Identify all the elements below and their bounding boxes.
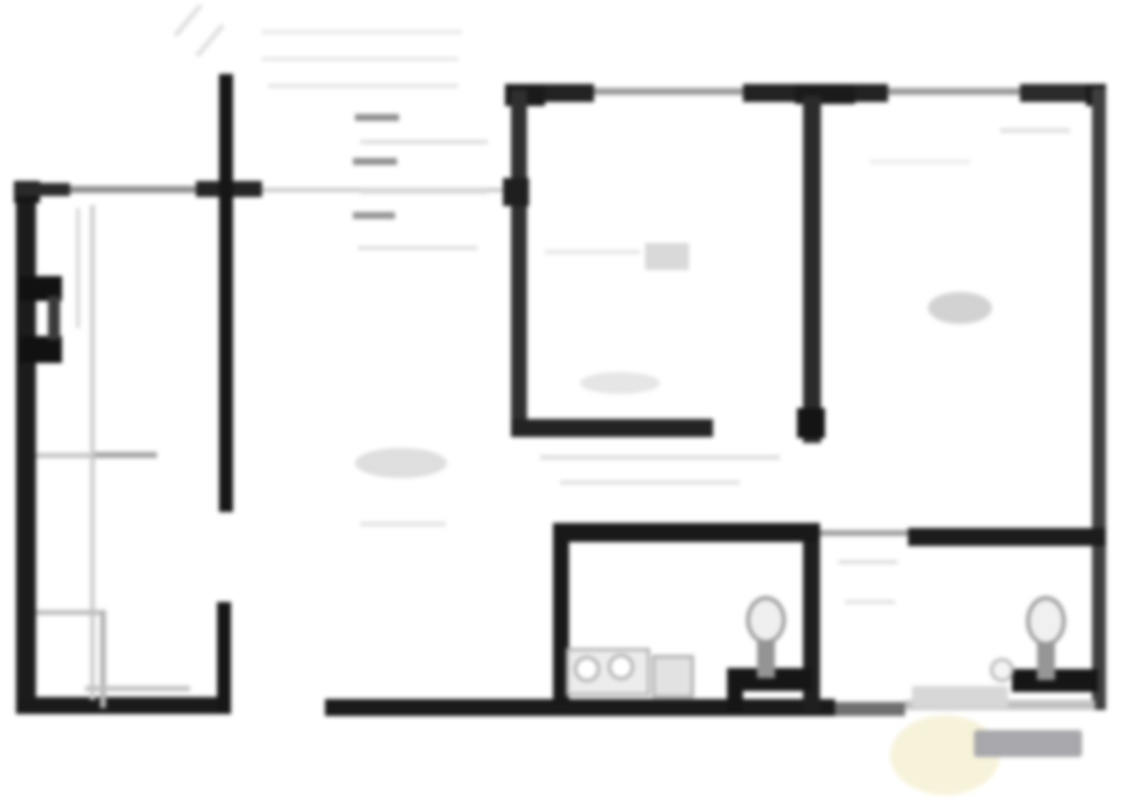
bottom-wall-door-strip — [835, 702, 905, 716]
left-wall-feature-edge — [48, 296, 60, 340]
center-room-smudge-oval — [580, 372, 660, 394]
floor-plan-drawing — [0, 0, 1127, 800]
bath-hall-faint-mark-2 — [845, 600, 895, 604]
partition-wall-upper — [803, 96, 821, 443]
hall-faint-line-1 — [360, 140, 488, 144]
closet-line-vertical — [100, 610, 106, 708]
hall-dash-3 — [353, 212, 395, 219]
sink-cabinet-box — [652, 655, 694, 698]
right-room-faint-mark-2 — [870, 160, 970, 164]
bath1-niche-wall-vertical — [727, 668, 743, 712]
stair-ghost-diagonal-1 — [173, 4, 203, 38]
interior-wall-vertical-lower — [217, 602, 231, 714]
hall-dash-2 — [353, 158, 397, 165]
top-wall-window-1 — [594, 88, 743, 95]
hall-faint-line-2 — [360, 190, 488, 194]
hall-ghost-line-1 — [262, 30, 462, 34]
bottom-wall-mid — [325, 699, 835, 716]
toilet2-bowl — [1026, 596, 1066, 646]
sink-bowl-1 — [574, 656, 600, 682]
right-exterior-wall — [1092, 88, 1106, 710]
left-wall-feature-bottom — [20, 336, 62, 363]
right-room-label-smudge — [928, 292, 992, 324]
bath2-niche-wall-horizontal — [1012, 669, 1098, 692]
partition-wall-upper-end-cap — [797, 408, 825, 438]
closet-line-horizontal-2 — [85, 686, 190, 691]
hall-ghost-line-3 — [268, 84, 458, 88]
left-top-wall-dark — [16, 183, 70, 196]
toilet1-tank — [757, 640, 775, 678]
dimension-scribble-1 — [540, 455, 780, 460]
hall-dash-1 — [355, 114, 399, 121]
top-wall-window-2 — [888, 88, 1020, 95]
center-room-smudge-line — [545, 250, 640, 254]
bath2-basin — [990, 658, 1014, 682]
hall-smudge-line — [360, 522, 446, 526]
wardrobe-line-vertical-2 — [76, 208, 80, 328]
center-room-bottom-wall — [511, 419, 713, 437]
bath2-top-wall — [908, 528, 1106, 546]
stair-ghost-diagonal-2 — [195, 24, 225, 58]
hall-faint-line-3 — [358, 246, 478, 250]
toilet2-tank — [1037, 642, 1055, 680]
hall-ghost-line-2 — [262, 57, 458, 61]
bottom-wall-left — [16, 697, 218, 714]
floor-plan-image — [0, 0, 1127, 800]
bath-door-threshold-line — [820, 530, 908, 536]
bath1-top-wall — [553, 523, 820, 542]
hall-smudge — [355, 448, 447, 478]
left-exterior-wall — [16, 183, 36, 714]
right-room-faint-mark-1 — [1000, 128, 1070, 133]
left-top-wall-thin — [70, 186, 200, 193]
watermark-gray-bar — [974, 730, 1082, 757]
left-room-shelf-dash — [95, 452, 157, 458]
bath2-counter — [912, 686, 1008, 708]
center-room-smudge-rect — [645, 243, 689, 270]
dimension-scribble-2 — [560, 480, 740, 485]
center-room-left-wall — [511, 90, 527, 437]
bath-hall-faint-mark-1 — [838, 560, 898, 564]
sink-bowl-2 — [608, 654, 634, 680]
center-room-left-wall-hinge — [503, 178, 529, 206]
interior-wall-vertical-upper — [219, 74, 233, 512]
closet-line-horizontal-1 — [36, 610, 106, 615]
toilet1-bowl — [746, 596, 786, 644]
